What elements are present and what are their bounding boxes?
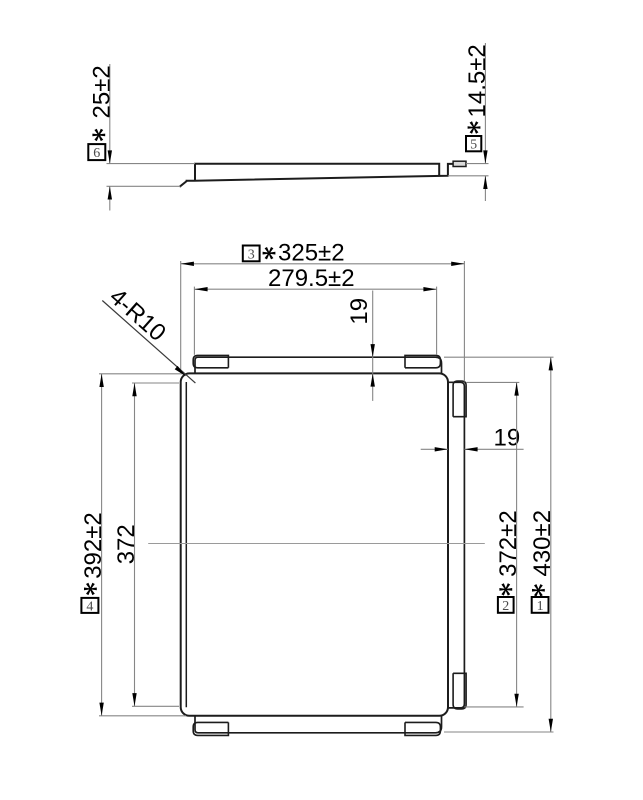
svg-text:3: 3 <box>248 247 255 262</box>
svg-text:2: 2 <box>502 599 509 614</box>
svg-text:6: 6 <box>93 146 100 161</box>
svg-text:430±2: 430±2 <box>529 510 556 577</box>
svg-text:5: 5 <box>470 138 477 153</box>
svg-text:325±2: 325±2 <box>278 239 345 266</box>
svg-text:279.5±2: 279.5±2 <box>268 265 355 292</box>
svg-text:14.5±2: 14.5±2 <box>464 44 491 117</box>
svg-text:392±2: 392±2 <box>80 512 107 579</box>
svg-text:25±2: 25±2 <box>88 65 115 118</box>
svg-text:19: 19 <box>346 298 373 325</box>
svg-text:1: 1 <box>537 599 544 614</box>
svg-text:4: 4 <box>86 599 93 614</box>
svg-text:372: 372 <box>113 524 140 564</box>
svg-text:372±2: 372±2 <box>495 510 522 577</box>
